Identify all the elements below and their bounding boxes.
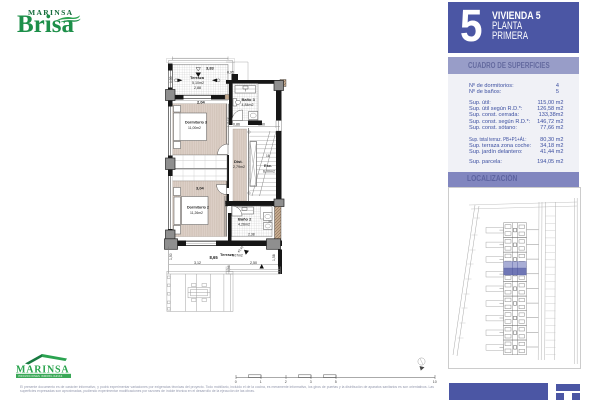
svg-text:Dist.: Dist.: [234, 159, 243, 164]
svg-text:11,00m2: 11,00m2: [188, 126, 201, 130]
svg-text:8,65: 8,65: [210, 255, 219, 260]
svg-text:7,07m2: 7,07m2: [232, 254, 243, 258]
svg-text:Dormitorio 2: Dormitorio 2: [187, 206, 209, 210]
svg-text:2: 2: [285, 380, 287, 384]
svg-text:3: 3: [310, 380, 312, 384]
svg-text:1: 1: [260, 380, 262, 384]
svg-text:1,90: 1,90: [258, 123, 265, 127]
svg-text:2,50: 2,50: [250, 261, 257, 265]
svg-text:Baño 3: Baño 3: [242, 97, 256, 102]
svg-text:3,12: 3,12: [194, 261, 201, 265]
svg-text:2,38: 2,38: [248, 233, 255, 237]
svg-text:1,55: 1,55: [169, 76, 173, 83]
svg-text:2,79m2: 2,79m2: [233, 165, 245, 169]
svg-text:4,26m2: 4,26m2: [238, 223, 250, 227]
svg-text:0: 0: [235, 380, 237, 384]
svg-text:0,95: 0,95: [227, 71, 234, 75]
svg-text:4,84m2: 4,84m2: [242, 103, 254, 107]
svg-text:2,88: 2,88: [194, 86, 201, 90]
svg-text:16: 16: [266, 154, 270, 158]
svg-text:Baño 2: Baño 2: [238, 217, 252, 222]
svg-text:Dormitorio 3: Dormitorio 3: [185, 121, 207, 125]
svg-text:±0,45: ±0,45: [236, 245, 244, 254]
svg-text:5: 5: [335, 380, 337, 384]
svg-text:PROMOCIONES INMOBILIARIAS: PROMOCIONES INMOBILIARIAS: [19, 375, 63, 378]
svg-text:Esc.: Esc.: [264, 163, 272, 168]
svg-text:3,04: 3,04: [196, 186, 205, 191]
svg-text:1,50: 1,50: [169, 253, 173, 260]
svg-text:10: 10: [433, 380, 437, 384]
svg-text:3,83: 3,83: [206, 66, 215, 71]
svg-text:5,10m2: 5,10m2: [192, 81, 204, 85]
svg-text:0,86: 0,86: [233, 123, 240, 127]
svg-text:11,26m2: 11,26m2: [190, 211, 203, 215]
svg-text:1,58: 1,58: [272, 254, 276, 261]
svg-text:6,00m2: 6,00m2: [263, 170, 275, 174]
svg-text:Terraza: Terraza: [190, 75, 205, 80]
